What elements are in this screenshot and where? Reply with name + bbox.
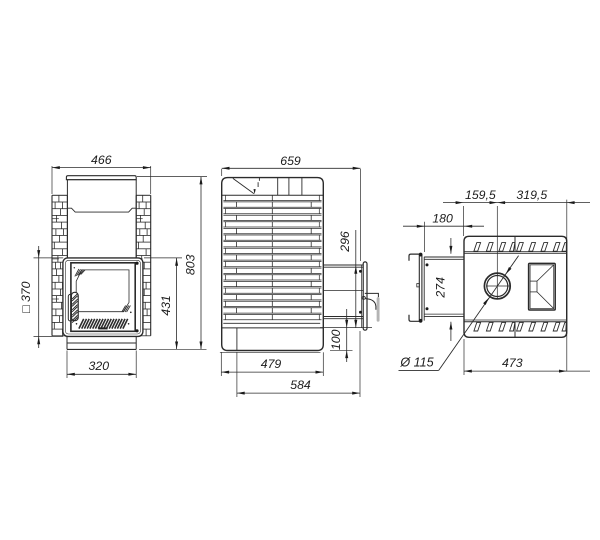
svg-text:473: 473: [502, 356, 523, 370]
svg-text:584: 584: [290, 378, 311, 392]
svg-text:100: 100: [329, 329, 343, 350]
svg-text:320: 320: [89, 359, 110, 373]
svg-text:431: 431: [159, 295, 173, 316]
svg-text:296: 296: [338, 231, 352, 253]
svg-text:319,5: 319,5: [516, 188, 547, 202]
svg-text:159,5: 159,5: [465, 188, 496, 202]
svg-text:479: 479: [261, 357, 282, 371]
svg-text:274: 274: [433, 277, 447, 299]
svg-text:803: 803: [184, 254, 198, 275]
svg-text:□ 370: □ 370: [19, 281, 33, 313]
svg-text:180: 180: [432, 211, 453, 225]
svg-text:Ø 115: Ø 115: [399, 356, 434, 370]
svg-text:466: 466: [91, 153, 112, 167]
svg-text:659: 659: [280, 154, 301, 168]
